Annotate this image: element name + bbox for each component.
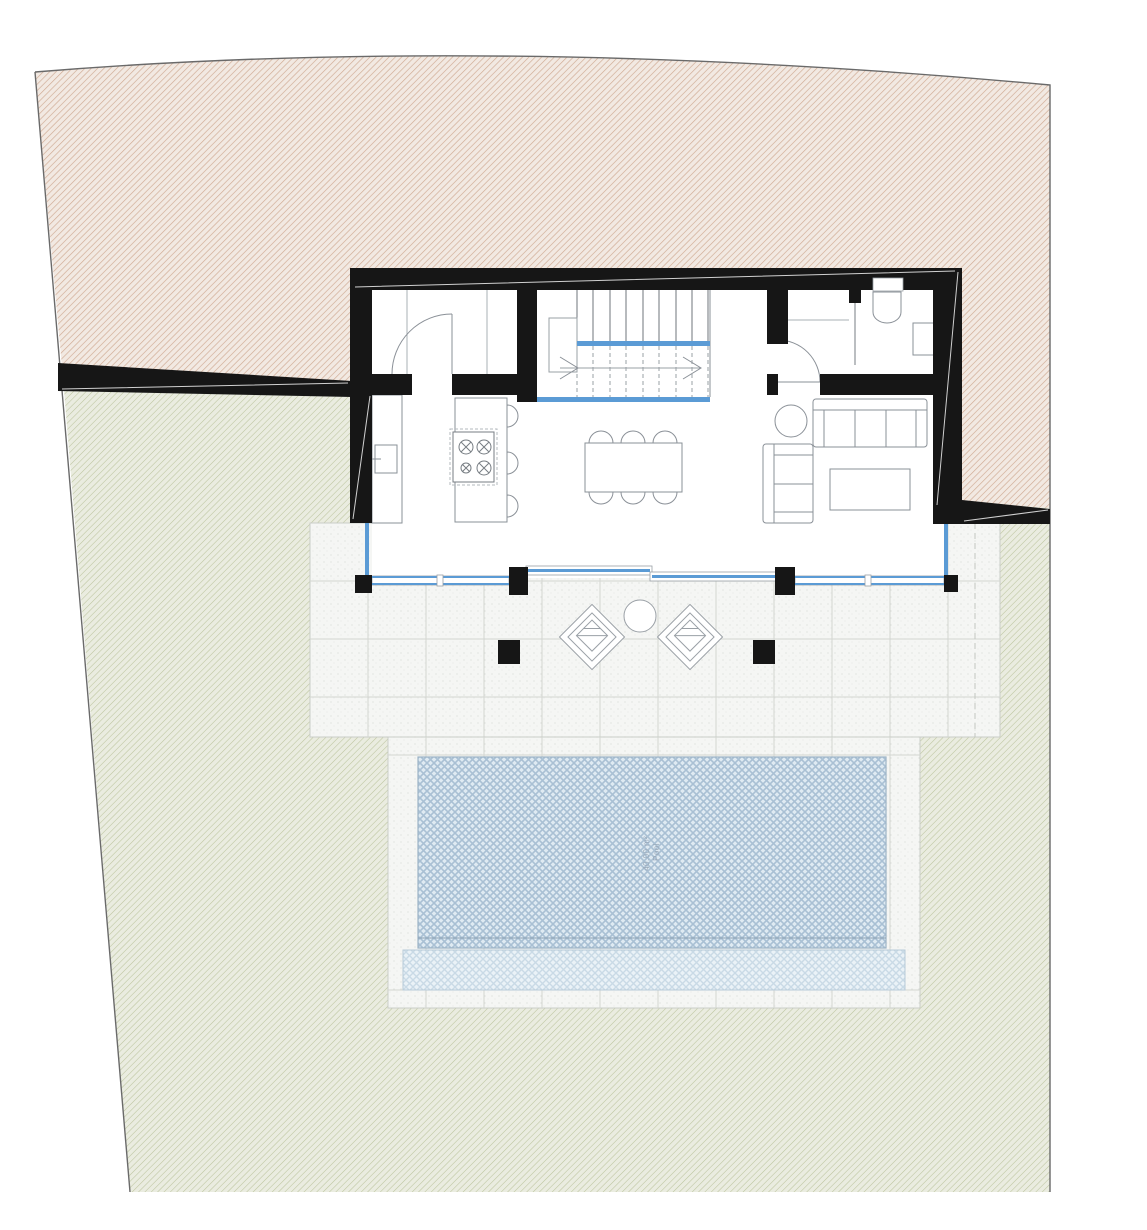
facade-column [355,575,372,593]
pool-overflow-strip [403,950,905,990]
side-table-round [775,405,807,437]
terrace-column [498,640,520,664]
facade-column [944,575,958,592]
wall-bath-south-left [767,374,778,395]
stair-edge-line [527,397,710,402]
toilet-cistern [873,278,903,291]
wall-east [933,268,962,524]
wall-bath-west [767,268,788,344]
dining-table [585,443,682,492]
patio-table-round [624,600,656,632]
wall-west [350,268,372,523]
glass-wall-west [365,521,369,579]
glass-door-sliding-left [526,566,652,575]
cooktop [453,432,494,482]
wall-entry-south-left [366,374,412,395]
wall-bath-south-right [820,374,940,395]
facade-column [775,567,795,595]
sofa-three-seat [813,399,927,447]
site-plan-canvas: 40.00 m² Pool [0,0,1147,1230]
sofa-two-seat [763,444,813,523]
toilet [873,292,901,323]
glass-door-sliding-right [650,572,777,581]
coffee-table [830,469,910,510]
terrace-column [753,640,775,664]
glass-panel-left [372,575,509,586]
swimming-pool: 40.00 m² Pool [403,757,905,990]
stair-landing-line [577,341,710,346]
facade-column [509,567,528,595]
wall-stair-west [517,268,537,402]
dining-area [585,431,682,504]
glass-wall-east [944,523,948,579]
glass-panel-right [795,575,944,586]
floor-plan-page: 40.00 m² Pool [0,0,1147,1230]
